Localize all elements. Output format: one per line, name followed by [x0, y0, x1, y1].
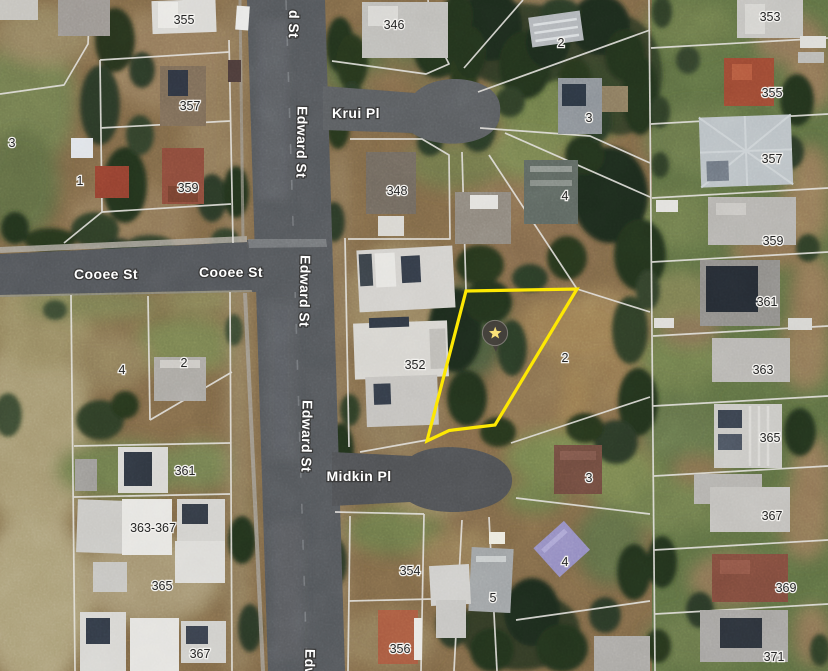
svg-text:354: 354	[400, 564, 421, 578]
svg-text:353: 353	[760, 10, 781, 24]
svg-text:Cooee St: Cooee St	[199, 264, 263, 280]
svg-text:5: 5	[490, 591, 497, 605]
svg-text:357: 357	[180, 99, 201, 113]
svg-text:367: 367	[190, 647, 211, 661]
svg-text:d St: d St	[286, 10, 302, 38]
svg-text:Cooee St: Cooee St	[74, 266, 138, 282]
svg-text:2: 2	[181, 356, 188, 370]
svg-text:348: 348	[387, 184, 408, 198]
svg-text:355: 355	[174, 13, 195, 27]
svg-text:Edward St: Edward St	[298, 400, 315, 472]
svg-text:Edward St: Edward St	[293, 106, 310, 178]
svg-text:367: 367	[762, 509, 783, 523]
svg-text:352: 352	[405, 358, 426, 372]
svg-text:365: 365	[152, 579, 173, 593]
svg-text:359: 359	[763, 234, 784, 248]
svg-text:3: 3	[9, 136, 16, 150]
svg-text:361: 361	[175, 464, 196, 478]
svg-text:1: 1	[77, 174, 84, 188]
svg-text:365: 365	[760, 431, 781, 445]
svg-text:Midkin Pl: Midkin Pl	[326, 468, 391, 484]
svg-text:2: 2	[558, 36, 565, 50]
svg-text:357: 357	[762, 152, 783, 166]
svg-text:361: 361	[757, 295, 778, 309]
svg-text:355: 355	[762, 86, 783, 100]
svg-text:2: 2	[562, 351, 569, 365]
svg-text:359: 359	[178, 181, 199, 195]
svg-text:371: 371	[764, 650, 785, 664]
svg-text:4: 4	[562, 189, 569, 203]
svg-text:Krui Pl: Krui Pl	[332, 105, 380, 121]
svg-text:356: 356	[390, 642, 411, 656]
svg-text:3: 3	[586, 471, 593, 485]
svg-text:4: 4	[119, 363, 126, 377]
svg-text:Edward St: Edward St	[296, 255, 313, 327]
svg-text:369: 369	[776, 581, 797, 595]
svg-text:363: 363	[753, 363, 774, 377]
svg-text:363-367: 363-367	[130, 521, 176, 535]
svg-text:3: 3	[586, 111, 593, 125]
svg-text:346: 346	[384, 18, 405, 32]
svg-text:Edwa: Edwa	[302, 649, 319, 671]
svg-text:4: 4	[562, 555, 569, 569]
